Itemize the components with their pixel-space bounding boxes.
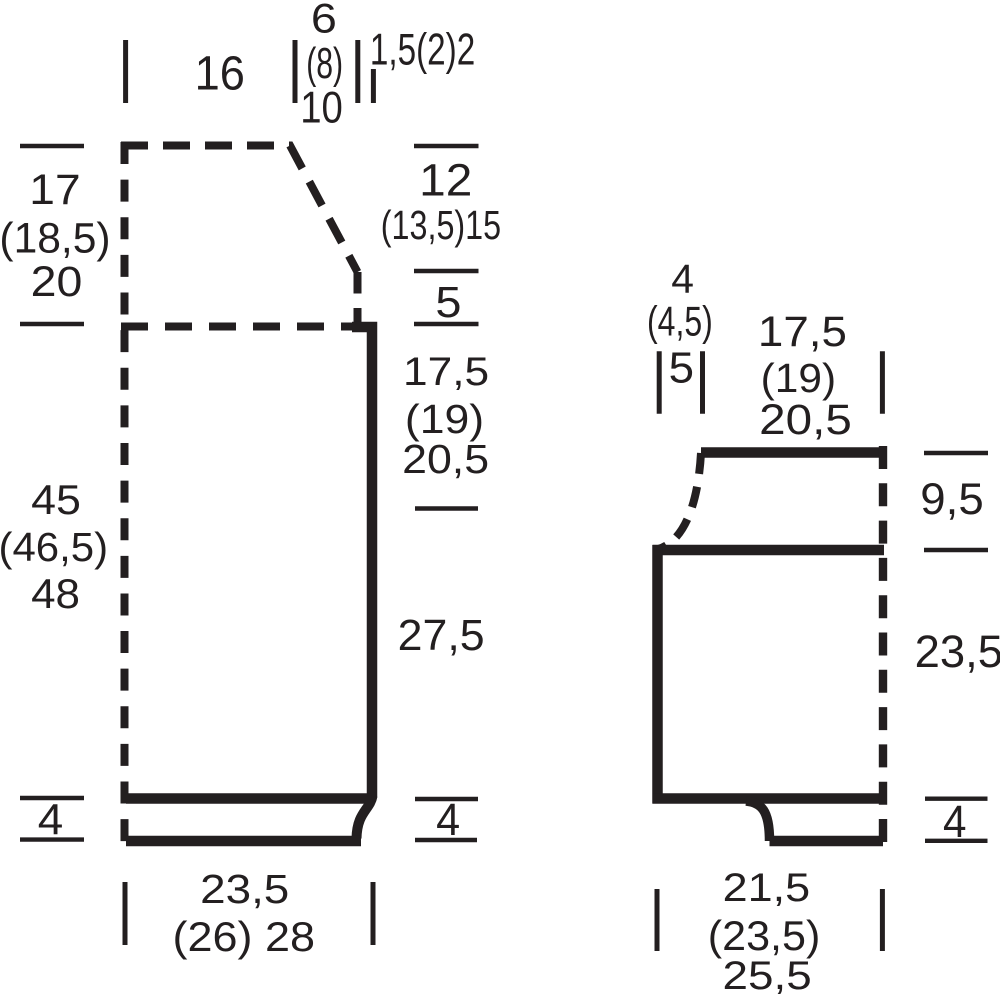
svg-text:1,5(2)2: 1,5(2)2: [370, 26, 475, 75]
svg-text:23,5: 23,5: [200, 866, 289, 912]
svg-text:5: 5: [669, 343, 694, 392]
svg-text:9,5: 9,5: [920, 473, 983, 524]
svg-text:16: 16: [195, 48, 245, 101]
svg-text:23,5: 23,5: [915, 626, 1000, 677]
svg-text:12: 12: [419, 155, 472, 206]
svg-text:17: 17: [29, 166, 80, 214]
svg-text:4: 4: [436, 794, 460, 845]
svg-text:4: 4: [943, 796, 967, 847]
svg-text:(13,5)15: (13,5)15: [381, 202, 501, 248]
svg-text:5: 5: [435, 279, 461, 327]
svg-text:4: 4: [38, 796, 63, 845]
svg-text:(46,5): (46,5): [0, 524, 108, 570]
svg-text:(18,5): (18,5): [0, 215, 111, 263]
svg-text:(4,5): (4,5): [647, 299, 713, 345]
svg-text:21,5: 21,5: [723, 865, 811, 910]
svg-text:6: 6: [311, 0, 337, 42]
svg-text:(19): (19): [761, 355, 836, 401]
svg-text:20: 20: [31, 258, 83, 305]
svg-text:27,5: 27,5: [398, 611, 485, 660]
svg-text:(26) 28: (26) 28: [173, 914, 316, 960]
svg-text:20,5: 20,5: [759, 396, 852, 444]
svg-text:(8): (8): [306, 39, 343, 88]
svg-text:45: 45: [31, 477, 81, 523]
svg-text:10: 10: [300, 83, 343, 132]
svg-text:25,5: 25,5: [723, 953, 812, 998]
svg-text:17,5: 17,5: [403, 350, 489, 394]
svg-text:4: 4: [671, 256, 694, 302]
svg-text:20,5: 20,5: [402, 436, 489, 482]
svg-text:17,5: 17,5: [758, 308, 847, 356]
svg-text:48: 48: [31, 570, 80, 617]
